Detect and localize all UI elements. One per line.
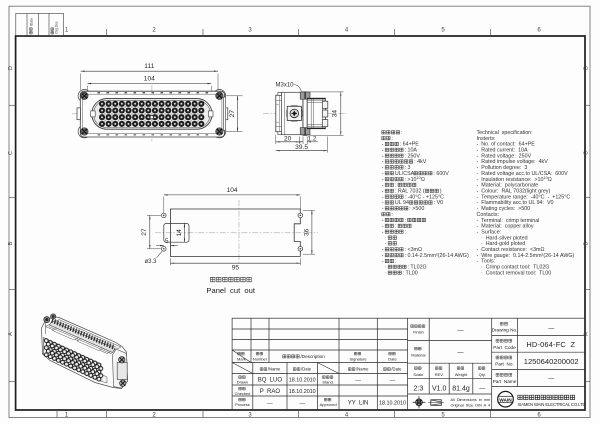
svg-text:1.2: 1.2 bbox=[308, 135, 317, 142]
svg-text:—: — bbox=[458, 328, 464, 334]
svg-text:Drawing No.: Drawing No. bbox=[492, 328, 518, 333]
svg-text:: V0: : V0 bbox=[434, 200, 444, 206]
svg-text:XIAMEN WAIN ELECTRICAL CO.LTD: XIAMEN WAIN ELECTRICAL CO.LTD bbox=[518, 402, 586, 407]
svg-text:95: 95 bbox=[232, 265, 240, 272]
svg-text:—: — bbox=[299, 401, 305, 407]
svg-text:/Description: /Description bbox=[301, 354, 326, 359]
svg-text:REV.: REV. bbox=[435, 372, 444, 377]
svg-text::: : bbox=[401, 130, 403, 136]
svg-text:39.5: 39.5 bbox=[295, 144, 308, 151]
svg-text:UL 94: UL 94 bbox=[395, 200, 409, 206]
svg-text:: >1010Ω: : >1010Ω bbox=[405, 176, 425, 183]
svg-text:HD-064-FC Z: HD-064-FC Z bbox=[526, 340, 575, 349]
svg-text:18.10.2010: 18.10.2010 bbox=[289, 378, 316, 384]
svg-text:—: — bbox=[355, 378, 361, 384]
svg-text::: : bbox=[395, 259, 397, 265]
svg-text:BQ LUO: BQ LUO bbox=[258, 378, 283, 384]
svg-text:Stand.: Stand. bbox=[322, 380, 334, 385]
svg-text:B: B bbox=[8, 241, 14, 245]
svg-text:D: D bbox=[584, 66, 590, 70]
svg-text:-: - bbox=[382, 206, 385, 212]
svg-text:—: — bbox=[458, 351, 464, 357]
svg-text:C: C bbox=[584, 151, 590, 155]
svg-text:Approved: Approved bbox=[320, 402, 337, 407]
svg-text:Part No.: Part No. bbox=[495, 362, 514, 367]
svg-text:: 4kV: : 4kV bbox=[414, 159, 427, 165]
svg-text:1250640200002: 1250640200002 bbox=[524, 357, 579, 366]
svg-text:·: · bbox=[382, 270, 388, 276]
svg-text:27: 27 bbox=[229, 110, 236, 118]
svg-text:V1.0: V1.0 bbox=[432, 386, 447, 393]
svg-text:18.10.2010: 18.10.2010 bbox=[289, 389, 316, 395]
svg-text:YY LIN: YY LIN bbox=[348, 401, 369, 407]
svg-text:/Name: /Name bbox=[356, 367, 369, 372]
svg-text:B: B bbox=[584, 241, 590, 245]
svg-text:Chg.Des.: Chg.Des. bbox=[55, 21, 59, 34]
svg-text:/Date: /Date bbox=[391, 367, 402, 372]
svg-text:: TL00: : TL00 bbox=[403, 270, 418, 276]
svg-text:D: D bbox=[8, 66, 14, 70]
svg-text:/Name: /Name bbox=[268, 367, 281, 372]
svg-text:Drawn: Drawn bbox=[237, 380, 249, 385]
svg-text:Scale: Scale bbox=[413, 372, 424, 377]
svg-text:Part Name: Part Name bbox=[493, 379, 517, 384]
svg-text:All Dimensions in mm: All Dimensions in mm bbox=[451, 398, 491, 402]
svg-text:Date: Date bbox=[388, 357, 397, 362]
svg-text:—: — bbox=[390, 378, 396, 384]
svg-text:104: 104 bbox=[144, 75, 155, 82]
svg-text:Number: Number bbox=[253, 357, 268, 362]
svg-text:ø3.3: ø3.3 bbox=[145, 259, 158, 265]
svg-text:18.10.2010: 18.10.2010 bbox=[379, 401, 406, 407]
svg-text:Mark: Mark bbox=[237, 357, 246, 362]
svg-text::: : bbox=[391, 212, 393, 218]
svg-text:36: 36 bbox=[303, 228, 310, 236]
svg-text:Weight: Weight bbox=[455, 372, 468, 377]
svg-text:81.4g: 81.4g bbox=[452, 386, 470, 393]
svg-text:5: 5 bbox=[165, 238, 169, 245]
svg-text:2:3: 2:3 bbox=[414, 386, 424, 393]
svg-text::: : bbox=[405, 218, 408, 224]
svg-text:Qty.: Qty. bbox=[479, 372, 486, 377]
svg-text:: 0.14-2.5mm²(26-14 AWG): : 0.14-2.5mm²(26-14 AWG) bbox=[405, 253, 469, 259]
svg-text::: : bbox=[391, 136, 393, 142]
svg-text:Signature: Signature bbox=[350, 357, 368, 362]
svg-text:P RAO: P RAO bbox=[260, 389, 281, 395]
svg-text:A: A bbox=[8, 332, 14, 336]
svg-text::: : bbox=[395, 224, 398, 230]
svg-text:—: — bbox=[479, 387, 485, 393]
svg-text:M3x10: M3x10 bbox=[276, 82, 295, 88]
svg-text:14: 14 bbox=[176, 229, 183, 237]
svg-text:: >500: : >500 bbox=[409, 206, 424, 212]
svg-text:/Date: /Date bbox=[30, 18, 34, 26]
svg-text:104: 104 bbox=[227, 187, 238, 194]
svg-text:—: — bbox=[548, 326, 554, 332]
svg-text:—: — bbox=[548, 376, 554, 382]
svg-text:—: — bbox=[267, 401, 273, 407]
svg-text:: 600V: : 600V bbox=[433, 171, 449, 177]
svg-text:34: 34 bbox=[332, 110, 339, 118]
svg-text:Checked: Checked bbox=[235, 391, 251, 396]
svg-text:WAIN: WAIN bbox=[499, 398, 512, 404]
svg-text:C: C bbox=[8, 151, 14, 155]
svg-text:Panel cut out: Panel cut out bbox=[206, 286, 255, 295]
svg-text:Original Size DIN A 4: Original Size DIN A 4 bbox=[451, 404, 491, 408]
svg-text::: : bbox=[405, 229, 407, 235]
svg-text:/Date: /Date bbox=[301, 367, 312, 372]
svg-text:27: 27 bbox=[141, 228, 148, 236]
svg-text:Finish: Finish bbox=[413, 330, 424, 335]
svg-text:20: 20 bbox=[284, 135, 292, 142]
svg-text:111: 111 bbox=[144, 63, 154, 70]
svg-text:· Contact removal tool: TL00: · Contact removal tool: TL00 bbox=[477, 270, 552, 276]
svg-text:Part Code: Part Code bbox=[493, 345, 516, 350]
svg-text:Process: Process bbox=[235, 402, 249, 407]
svg-text:Material: Material bbox=[411, 353, 425, 358]
